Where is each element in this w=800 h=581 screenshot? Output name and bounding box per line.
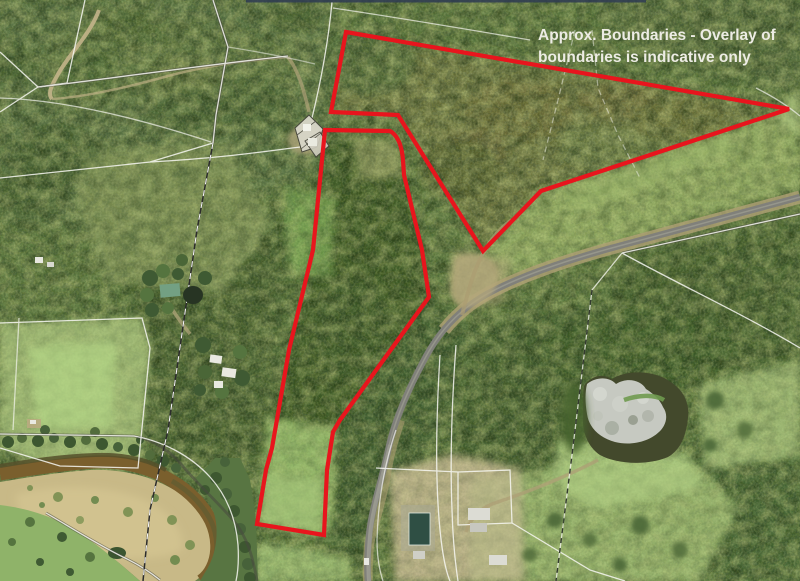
svg-text:Approx. Boundaries - Overlay o: Approx. Boundaries - Overlay of: [538, 27, 777, 44]
svg-text:boundaries is indicative only: boundaries is indicative only: [538, 49, 751, 66]
